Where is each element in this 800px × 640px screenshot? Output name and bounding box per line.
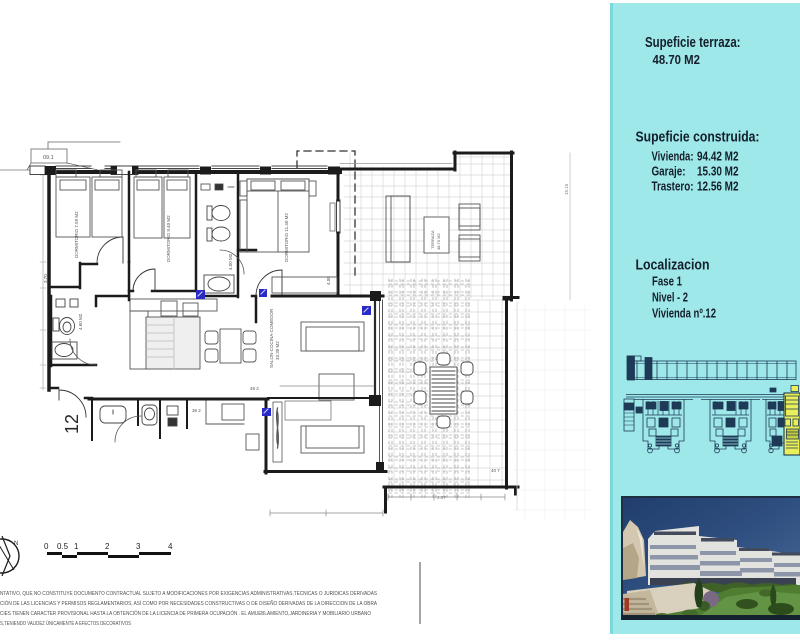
svg-text:48 2: 48 2 [250,386,259,391]
svg-text:Garaje:: Garaje: [652,164,686,178]
svg-text:DORMITORIO 7.59 M2: DORMITORIO 7.59 M2 [74,211,79,258]
svg-text:12.56 M2: 12.56 M2 [697,179,739,193]
svg-text:09.1: 09.1 [43,155,54,161]
svg-text:15.30 M2: 15.30 M2 [697,164,739,178]
svg-text:48.70 M2: 48.70 M2 [653,53,701,67]
svg-text:SALON-COCINA-COMEDOR: SALON-COCINA-COMEDOR [269,308,274,368]
svg-text:Trastero:: Trastero: [652,179,694,193]
svg-text:4.00 M2: 4.00 M2 [228,253,233,270]
svg-text:15.15: 15.15 [564,183,569,195]
svg-text:94.42 M2: 94.42 M2 [697,149,739,163]
svg-text:Supeficie terraza:: Supeficie terraza: [645,34,741,51]
svg-text:4: 4 [168,542,173,551]
svg-text:2: 2 [105,542,110,551]
svg-text:Supeficie construida:: Supeficie construida: [636,129,760,146]
svg-text:N: N [14,541,18,547]
svg-text:48.70 M2: 48.70 M2 [436,233,441,250]
svg-text:Vivienda nº.12: Vivienda nº.12 [652,307,716,321]
svg-text:1: 1 [74,542,79,551]
svg-text:3.70: 3.70 [43,274,48,283]
svg-text:33.30 M2: 33.30 M2 [275,341,280,360]
svg-text:12: 12 [62,414,82,434]
svg-text:4.07: 4.07 [437,495,446,500]
svg-text:0.5: 0.5 [57,542,69,551]
svg-text:Fase 1: Fase 1 [652,275,682,289]
svg-text:S,TENIENDO VALIDEZ ÚNICAMENTE: S,TENIENDO VALIDEZ ÚNICAMENTE A EFECTOS … [0,620,131,627]
svg-text:Vivienda:: Vivienda: [652,149,694,163]
svg-text:NTATIVO, QUE NO CONSTITUYE DOC: NTATIVO, QUE NO CONSTITUYE DOCUMENTO CON… [0,591,377,597]
svg-text:Nivel - 2: Nivel - 2 [652,291,688,305]
svg-text:DORMITORIO 9.40 M2: DORMITORIO 9.40 M2 [166,215,171,262]
svg-text:36 2: 36 2 [192,408,201,413]
svg-text:40 7: 40 7 [491,468,500,473]
svg-text:CIÓN DE LAS LICENCIAS Y PERMIS: CIÓN DE LAS LICENCIAS Y PERMISOS REGLAME… [0,600,377,607]
svg-text:DORMITORIO 11.40 M2: DORMITORIO 11.40 M2 [284,213,289,262]
svg-text:4.60 M2: 4.60 M2 [78,313,83,330]
svg-text:3: 3 [136,542,141,551]
svg-text:0: 0 [44,542,49,551]
svg-text:4.00: 4.00 [326,276,331,285]
svg-text:Localizacion: Localizacion [636,258,710,274]
svg-text:CIES TIENEN CARACTER PROVISION: CIES TIENEN CARACTER PROVISIONAL HASTA L… [0,610,371,617]
svg-text:TERRAZA: TERRAZA [430,230,435,249]
